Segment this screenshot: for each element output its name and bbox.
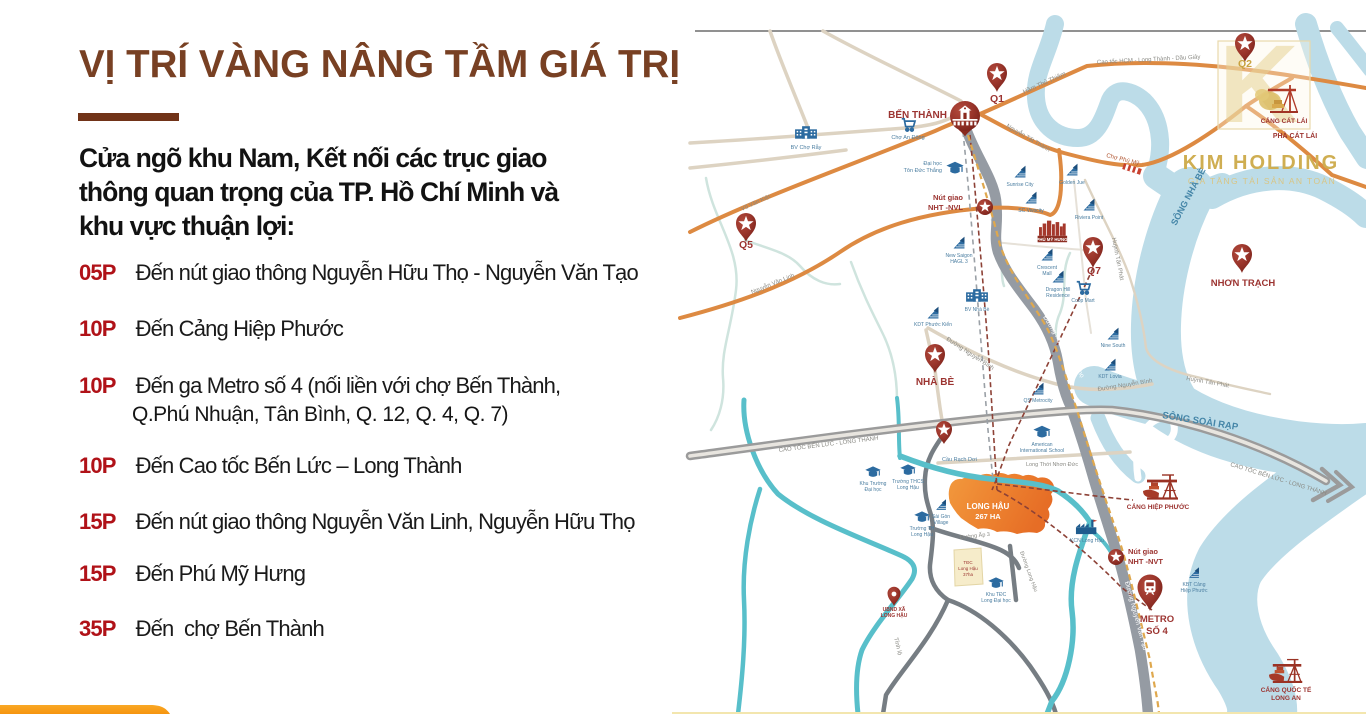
svg-text:Q2: Q2 <box>1238 58 1252 70</box>
svg-text:Riviera Point: Riviera Point <box>1075 215 1104 221</box>
svg-text:BẾN THÀNH: BẾN THÀNH <box>888 108 947 121</box>
svg-text:Cầu Rạch Dơi: Cầu Rạch Dơi <box>942 457 977 463</box>
svg-text:LONG HẬU: LONG HẬU <box>881 612 908 619</box>
svg-text:LONG AN: LONG AN <box>1271 695 1301 702</box>
svg-text:BV Chợ Rẫy: BV Chợ Rẫy <box>791 144 822 151</box>
svg-text:QS Metrocity: QS Metrocity <box>1024 398 1053 404</box>
svg-text:Residence: Residence <box>1046 293 1070 299</box>
svg-text:CẢNG CÁT LÁI: CẢNG CÁT LÁI <box>1261 116 1308 125</box>
svg-text:NHƠN TRẠCH: NHƠN TRẠCH <box>1211 278 1276 289</box>
svg-text:Coop Mart: Coop Mart <box>1071 298 1095 304</box>
svg-text:K: K <box>1219 23 1298 146</box>
svg-text:Tôn Đức Thắng: Tôn Đức Thắng <box>904 167 942 174</box>
svg-text:TĐC: TĐC <box>963 560 973 565</box>
svg-text:Đại học: Đại học <box>923 161 942 167</box>
svg-text:Tỉnh lộ: Tỉnh lộ <box>892 637 903 657</box>
svg-text:Võ Văn Kiệt: Võ Văn Kiệt <box>740 194 772 213</box>
svg-text:Q7: Q7 <box>1087 265 1101 277</box>
svg-text:Long Đại học: Long Đại học <box>981 598 1011 604</box>
svg-text:Long Hậu: Long Hậu <box>911 532 933 538</box>
svg-text:Golden Jue: Golden Jue <box>1059 180 1085 186</box>
svg-text:PHÚ MỸ HƯNG: PHÚ MỸ HƯNG <box>1036 237 1068 242</box>
svg-text:International School: International School <box>1020 448 1064 454</box>
svg-text:267 HA: 267 HA <box>975 512 1001 521</box>
svg-text:Nine South: Nine South <box>1101 343 1126 349</box>
svg-text:UBND XÃ: UBND XÃ <box>883 606 906 613</box>
svg-text:CẢNG HIỆP PHƯỚC: CẢNG HIỆP PHƯỚC <box>1127 502 1190 511</box>
svg-text:GIA TĂNG TÀI SẢN AN TOÀN: GIA TĂNG TÀI SẢN AN TOÀN <box>1188 175 1336 186</box>
svg-text:Q1: Q1 <box>990 93 1004 105</box>
svg-text:NHT -NVL: NHT -NVL <box>928 203 963 212</box>
svg-text:Nút giao: Nút giao <box>1128 547 1158 556</box>
svg-text:Long Thới Nhơn Đức: Long Thới Nhơn Đức <box>1026 462 1078 468</box>
svg-text:Village: Village <box>934 520 949 526</box>
svg-text:PHÀ CÁT LÁI: PHÀ CÁT LÁI <box>1273 131 1317 140</box>
svg-text:HAGL 3: HAGL 3 <box>950 259 968 265</box>
svg-text:KCN Long Hậu: KCN Long Hậu <box>1070 538 1104 544</box>
svg-text:KDT Phước Kiển: KDT Phước Kiển <box>914 321 952 328</box>
svg-text:Đại học: Đại học <box>865 487 882 493</box>
svg-text:NHÀ BÈ: NHÀ BÈ <box>916 375 955 388</box>
svg-text:Đường Nguyễn Bình: Đường Nguyễn Bình <box>945 336 995 372</box>
svg-text:Long Hậu: Long Hậu <box>958 566 978 571</box>
svg-text:Sunrise City: Sunrise City <box>1007 182 1034 188</box>
svg-text:METRO: METRO <box>1140 614 1174 625</box>
svg-text:NHT -NVT: NHT -NVT <box>1128 557 1163 566</box>
svg-text:Đường Long Hậu: Đường Long Hậu <box>1018 551 1038 593</box>
svg-text:37ha: 37ha <box>963 572 974 577</box>
svg-text:Hiệp Phước: Hiệp Phước <box>1181 588 1208 594</box>
svg-text:Q5: Q5 <box>739 239 753 251</box>
svg-text:Nút giao: Nút giao <box>933 193 963 202</box>
svg-text:SỐ 4: SỐ 4 <box>1146 625 1168 637</box>
svg-text:SC Vivocity: SC Vivocity <box>1018 208 1044 214</box>
svg-text:LONG HẬU: LONG HẬU <box>967 502 1010 511</box>
svg-text:Chợ An Đông: Chợ An Đông <box>891 135 924 141</box>
svg-text:Nguyễn Văn Linh: Nguyễn Văn Linh <box>750 272 795 296</box>
svg-text:KDT Lovia: KDT Lovia <box>1098 374 1121 380</box>
svg-text:Long Hậu: Long Hậu <box>897 485 919 491</box>
svg-text:BV Nhà Bè: BV Nhà Bè <box>965 307 990 313</box>
svg-text:Mall: Mall <box>1042 271 1051 277</box>
